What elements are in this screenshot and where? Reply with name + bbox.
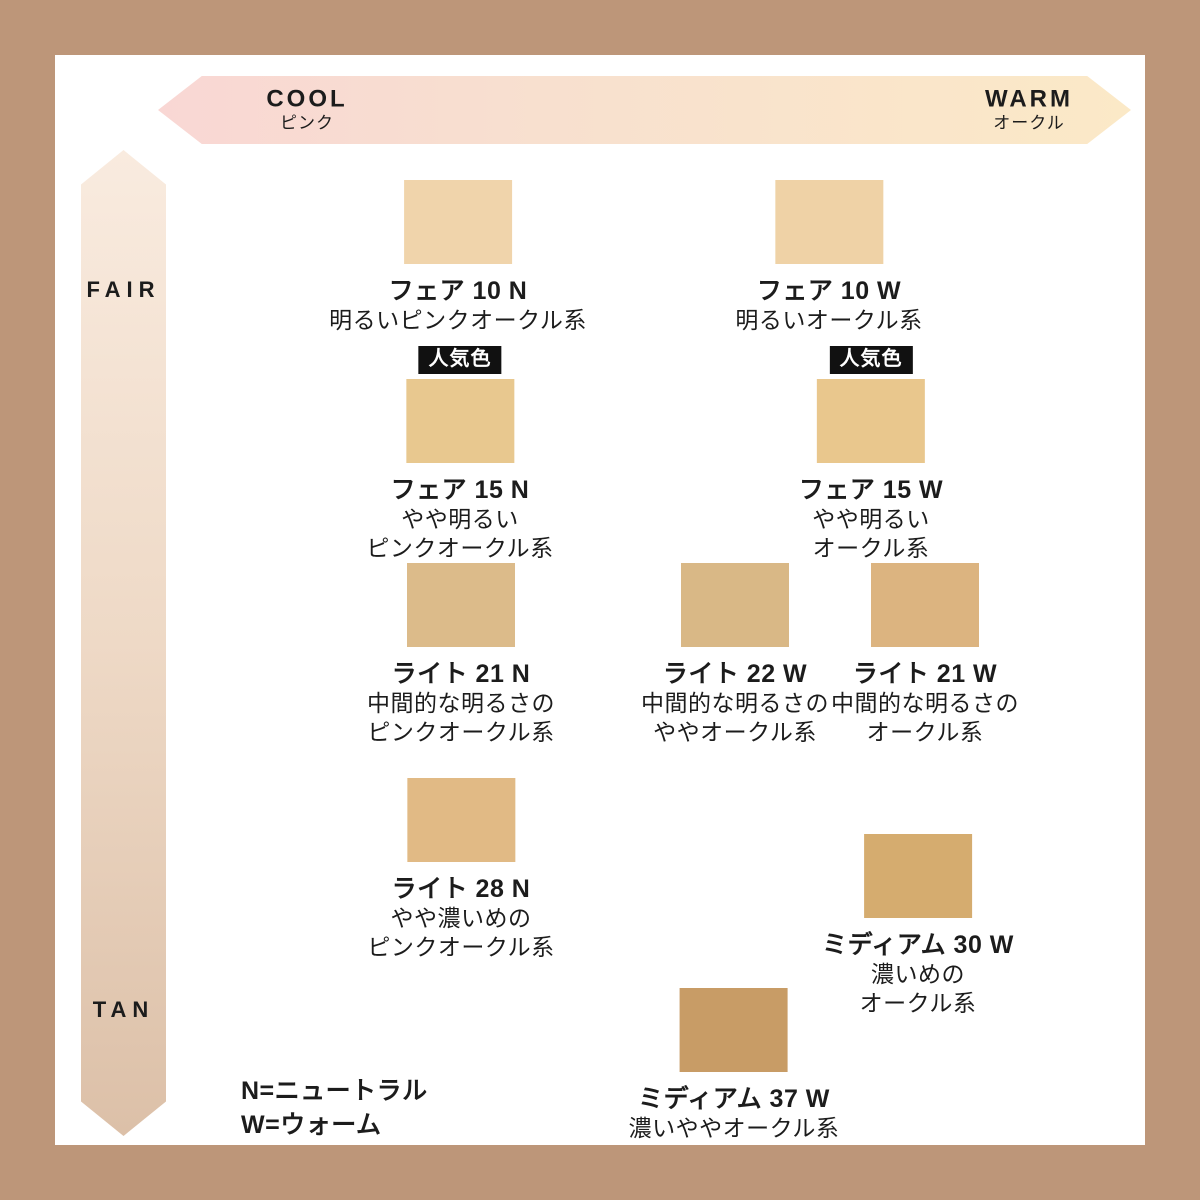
shade-description-line: ピンクオークル系 [367, 933, 554, 962]
shade-description-line: 濃いめの [871, 960, 965, 989]
shade-description-line: ピンクオークル系 [367, 718, 554, 747]
popular-badge: 人気色 [829, 346, 912, 374]
shade-description-line: 中間的な明るさの [831, 689, 1019, 718]
undertone-legend: N=ニュートラル W=ウォーム [241, 1074, 428, 1142]
shade-color-swatch [404, 180, 512, 264]
shade-name: フェア 10 W [757, 276, 901, 306]
shade-name: ライト 28 N [392, 874, 531, 904]
shade-description-line: 明るいピンクオークル系 [329, 306, 587, 335]
tan-label: TAN [93, 997, 155, 1023]
shade-name: ミディアム 37 W [638, 1084, 830, 1114]
shade-light-22-w: ライト 22 W 中間的な明るさの ややオークル系 [641, 563, 829, 747]
shade-description-line: オークル系 [867, 718, 984, 747]
shade-description-line: やや明るい [401, 505, 519, 534]
fair-tan-axis-arrow: FAIR TAN [81, 150, 166, 1136]
shade-fair-10-n: フェア 10 N 明るいピンクオークル系 [329, 180, 587, 335]
shade-color-swatch [871, 563, 979, 647]
shade-name: ライト 22 W [663, 659, 807, 689]
shade-name: フェア 15 W [799, 475, 943, 505]
shade-name: ミディアム 30 W [822, 930, 1014, 960]
shade-color-swatch [681, 563, 789, 647]
shade-color-swatch [864, 834, 972, 918]
shade-color-swatch [680, 988, 788, 1072]
legend-neutral-line: N=ニュートラル [241, 1074, 428, 1108]
shade-color-swatch [406, 379, 514, 463]
shade-description-line: オークル系 [860, 989, 977, 1018]
shade-fair-10-w: フェア 10 W 明るいオークル系 [735, 180, 922, 335]
shade-name: フェア 10 N [389, 276, 528, 306]
shade-description-line: ややオークル系 [653, 718, 817, 747]
cool-label: COOL [266, 87, 347, 113]
shade-description-line: オークル系 [813, 534, 930, 563]
shade-light-21-w: ライト 21 W 中間的な明るさの オークル系 [831, 563, 1019, 747]
fair-label: FAIR [86, 277, 160, 303]
shade-description-line: やや明るい [812, 505, 930, 534]
axis-cool-label-group: COOL ピンク [266, 87, 347, 134]
popular-badge: 人気色 [419, 346, 502, 374]
shade-medium-30-w: ミディアム 30 W 濃いめの オークル系 [822, 834, 1014, 1018]
shade-color-swatch [775, 180, 883, 264]
cool-sublabel: ピンク [266, 113, 347, 134]
legend-warm-line: W=ウォーム [241, 1108, 428, 1142]
shade-description-line: やや濃いめの [391, 904, 532, 933]
shade-description-line: 濃いややオークル系 [629, 1114, 840, 1143]
shade-color-swatch [407, 563, 515, 647]
cool-warm-axis-arrow: COOL ピンク WARM オークル [158, 76, 1131, 144]
axis-warm-label-group: WARM オークル [985, 87, 1073, 134]
shade-description-line: 中間的な明るさの [641, 689, 829, 718]
shade-fair-15-w: 人気色 フェア 15 W やや明るい オークル系 [799, 346, 943, 563]
shade-fair-15-n: 人気色 フェア 15 N やや明るい ピンクオークル系 [366, 346, 553, 563]
shade-chart-panel: COOL ピンク WARM オークル FAIR TAN フェア 10 N 明るい… [55, 55, 1145, 1145]
shade-name: ライト 21 W [853, 659, 997, 689]
shade-chart-frame: COOL ピンク WARM オークル FAIR TAN フェア 10 N 明るい… [0, 0, 1200, 1200]
shade-light-21-n: ライト 21 N 中間的な明るさの ピンクオークル系 [367, 563, 555, 747]
shade-light-28-n: ライト 28 N やや濃いめの ピンクオークル系 [367, 778, 554, 962]
shade-name: ライト 21 N [392, 659, 531, 689]
shade-description-line: 中間的な明るさの [367, 689, 555, 718]
warm-label: WARM [985, 87, 1073, 113]
shade-name: フェア 15 N [391, 475, 530, 505]
shade-description-line: ピンクオークル系 [366, 534, 553, 563]
shade-medium-37-w: ミディアム 37 W 濃いややオークル系 [629, 988, 840, 1143]
warm-sublabel: オークル [985, 113, 1073, 134]
shade-description-line: 明るいオークル系 [735, 306, 922, 335]
shade-color-swatch [407, 778, 515, 862]
shade-color-swatch [817, 379, 925, 463]
